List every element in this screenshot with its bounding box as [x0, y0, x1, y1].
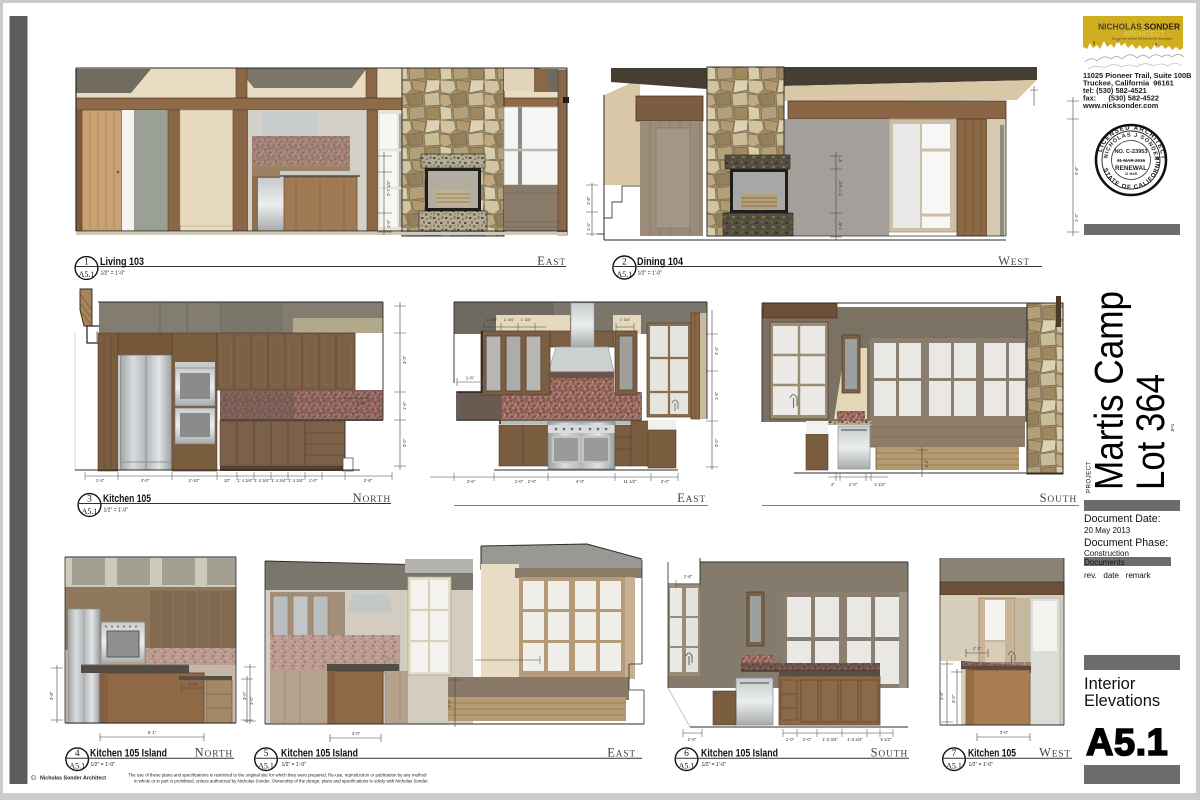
svg-text:3'-4": 3'-4"	[714, 346, 719, 355]
svg-text:Kitchen 105 Island: Kitchen 105 Island	[90, 748, 167, 760]
svg-text:1'-0": 1'-0"	[515, 479, 524, 484]
svg-text:3'-0": 3'-0"	[951, 694, 956, 703]
svg-text:10": 10"	[224, 478, 231, 483]
svg-text:in whole or in part is prohibi: in whole or in part is prohibited, unles…	[134, 778, 429, 783]
svg-text:3'-0": 3'-0"	[402, 438, 407, 447]
svg-text:Interior: Interior	[1084, 675, 1136, 693]
svg-text:1'-0": 1'-0"	[189, 682, 198, 687]
svg-text:1' 4 3/4": 1' 4 3/4"	[237, 478, 253, 483]
svg-text:5: 5	[264, 749, 269, 759]
svg-text:5": 5"	[838, 158, 843, 162]
svg-text:Construction: Construction	[1084, 549, 1129, 558]
svg-text:1' 3/4": 1' 3/4"	[521, 318, 532, 322]
svg-text:A5.1: A5.1	[679, 762, 695, 771]
svg-text:tech. art tech. architect 3b9: tech. art tech. architect 3b9 and more f…	[1112, 38, 1172, 41]
svg-text:31 MAR: 31 MAR	[1125, 172, 1138, 176]
svg-text:3'-0": 3'-0"	[714, 438, 719, 447]
svg-text:1'-0": 1'-0"	[309, 478, 318, 483]
svg-text:1' 4 3/4": 1' 4 3/4"	[254, 478, 270, 483]
svg-text:Documents: Documents	[1084, 558, 1124, 567]
svg-text:5'-8": 5'-8"	[1074, 166, 1079, 175]
svg-text:20 May 2013: 20 May 2013	[1084, 526, 1131, 535]
svg-text:Lot 364: Lot 364	[1129, 374, 1173, 490]
svg-text:2'-0": 2'-0"	[803, 737, 812, 742]
svg-text:4'-0": 4'-0"	[576, 479, 585, 484]
svg-text:Nicholas Sonder Architect: Nicholas Sonder Architect	[40, 776, 106, 782]
svg-text:3'-0": 3'-0"	[141, 478, 150, 483]
svg-text:1'-6": 1'-6"	[466, 376, 475, 381]
svg-text:2'-7 1/4": 2'-7 1/4"	[838, 180, 843, 196]
svg-text:JFS: JFS	[1170, 424, 1175, 432]
svg-text:1'-3 3/4": 1'-3 3/4"	[822, 737, 838, 742]
svg-text:2'-6": 2'-6"	[467, 479, 476, 484]
svg-text:Document Date:: Document Date:	[1084, 513, 1161, 525]
svg-text:A5.1: A5.1	[69, 762, 85, 771]
svg-text:7: 7	[952, 749, 957, 759]
svg-text:2": 2"	[831, 482, 835, 487]
svg-text:The use of these plans and spe: The use of these plans and specification…	[128, 773, 427, 778]
svg-text:Kitchen 105 Island: Kitchen 105 Island	[281, 748, 358, 760]
svg-text:4: 4	[75, 749, 80, 759]
svg-text:2 1/2": 2 1/2"	[874, 482, 886, 487]
svg-text:1'-8": 1'-8"	[586, 196, 591, 205]
svg-text:1/2" = 1'-0": 1/2" = 1'-0"	[104, 508, 129, 514]
svg-text:1/2" = 1'-0": 1/2" = 1'-0"	[702, 762, 727, 768]
svg-text:1' 1": 1' 1"	[973, 646, 982, 651]
svg-text:Kitchen 105: Kitchen 105	[968, 748, 1016, 760]
svg-text:1'-6": 1'-6"	[838, 221, 843, 230]
svg-text:1/2" = 1'-0": 1/2" = 1'-0"	[91, 762, 116, 768]
svg-text:Dining 104: Dining 104	[637, 256, 684, 268]
svg-text:1'-6": 1'-6"	[402, 401, 407, 410]
svg-text:1'-4": 1'-4"	[447, 699, 452, 708]
svg-text:C: C	[32, 775, 35, 780]
svg-text:1'-6": 1'-6"	[714, 391, 719, 400]
svg-text:3'-8": 3'-8"	[939, 691, 944, 700]
svg-text:6: 6	[684, 749, 689, 759]
svg-text:1'-4": 1'-4"	[586, 222, 591, 231]
svg-text:A5.1: A5.1	[79, 270, 95, 279]
svg-text:3'-0": 3'-0"	[1000, 730, 1009, 735]
svg-text:2'-10": 2'-10"	[189, 478, 200, 483]
svg-text:2'-0": 2'-0"	[661, 479, 670, 484]
svg-text:31 MAR 2015: 31 MAR 2015	[1117, 158, 1146, 163]
svg-text:1'-6": 1'-6"	[386, 219, 391, 228]
svg-text:3'-8": 3'-8"	[49, 691, 54, 700]
svg-text:1'-6": 1'-6"	[356, 401, 365, 406]
svg-text:1' 4 3/4": 1' 4 3/4"	[288, 478, 304, 483]
svg-text:Living 103: Living 103	[100, 256, 144, 268]
svg-text:1/2" = 1'-0": 1/2" = 1'-0"	[101, 271, 126, 277]
svg-text:NO. C-23953: NO. C-23953	[1115, 149, 1148, 155]
svg-text:Kitchen 105 Island: Kitchen 105 Island	[701, 748, 778, 760]
svg-text:5 1/2": 5 1/2"	[880, 737, 892, 742]
svg-text:Kitchen 105: Kitchen 105	[103, 493, 151, 505]
svg-text:1/2" = 1'-0": 1/2" = 1'-0"	[969, 762, 994, 768]
svg-text:1'-6": 1'-6"	[684, 574, 693, 579]
svg-text:2'-7 1/4": 2'-7 1/4"	[386, 180, 391, 196]
svg-text:A5.1: A5.1	[617, 270, 633, 279]
svg-text:11 1/2": 11 1/2"	[623, 479, 637, 484]
svg-text:1'-4": 1'-4"	[924, 459, 929, 468]
svg-text:1' 3/4": 1' 3/4"	[620, 318, 631, 322]
svg-text:RENEWAL: RENEWAL	[1115, 165, 1147, 172]
svg-text:3'-0": 3'-0"	[352, 731, 361, 736]
svg-text:A5.1: A5.1	[1086, 722, 1168, 764]
svg-text:2'-6": 2'-6"	[688, 737, 697, 742]
svg-text:Elevations: Elevations	[1084, 692, 1160, 710]
svg-text:2'-6": 2'-6"	[364, 478, 373, 483]
svg-text:rev. date remark: rev. date remark	[1084, 571, 1152, 580]
svg-text:1'-4": 1'-4"	[96, 478, 105, 483]
svg-text:3'-0": 3'-0"	[242, 691, 247, 700]
svg-text:2'-0": 2'-0"	[849, 482, 858, 487]
svg-text:A5.1: A5.1	[82, 507, 98, 516]
svg-text:1' 3/4": 1' 3/4"	[487, 318, 498, 322]
svg-text:A5.1: A5.1	[258, 762, 274, 771]
svg-text:1/2" = 1'-0": 1/2" = 1'-0"	[282, 762, 307, 768]
svg-text:Document Phase:: Document Phase:	[1084, 537, 1168, 549]
svg-text:1' 3/4": 1' 3/4"	[504, 318, 515, 322]
svg-text:A5.1: A5.1	[946, 762, 962, 771]
svg-text:1'-4": 1'-4"	[1074, 213, 1079, 222]
svg-text:1'-3 3/4": 1'-3 3/4"	[847, 737, 863, 742]
svg-text:1'-0": 1'-0"	[786, 737, 795, 742]
svg-text:6' 1": 6' 1"	[148, 730, 157, 735]
svg-text:1' 4 3/4": 1' 4 3/4"	[271, 478, 287, 483]
svg-text:2'-0": 2'-0"	[528, 479, 537, 484]
svg-text:Martis Camp: Martis Camp	[1088, 291, 1132, 490]
svg-text:1/2" = 1'-0": 1/2" = 1'-0"	[638, 271, 663, 277]
svg-text:www.nicksonder.com: www.nicksonder.com	[1082, 101, 1159, 110]
svg-text:3'-3": 3'-3"	[402, 355, 407, 364]
